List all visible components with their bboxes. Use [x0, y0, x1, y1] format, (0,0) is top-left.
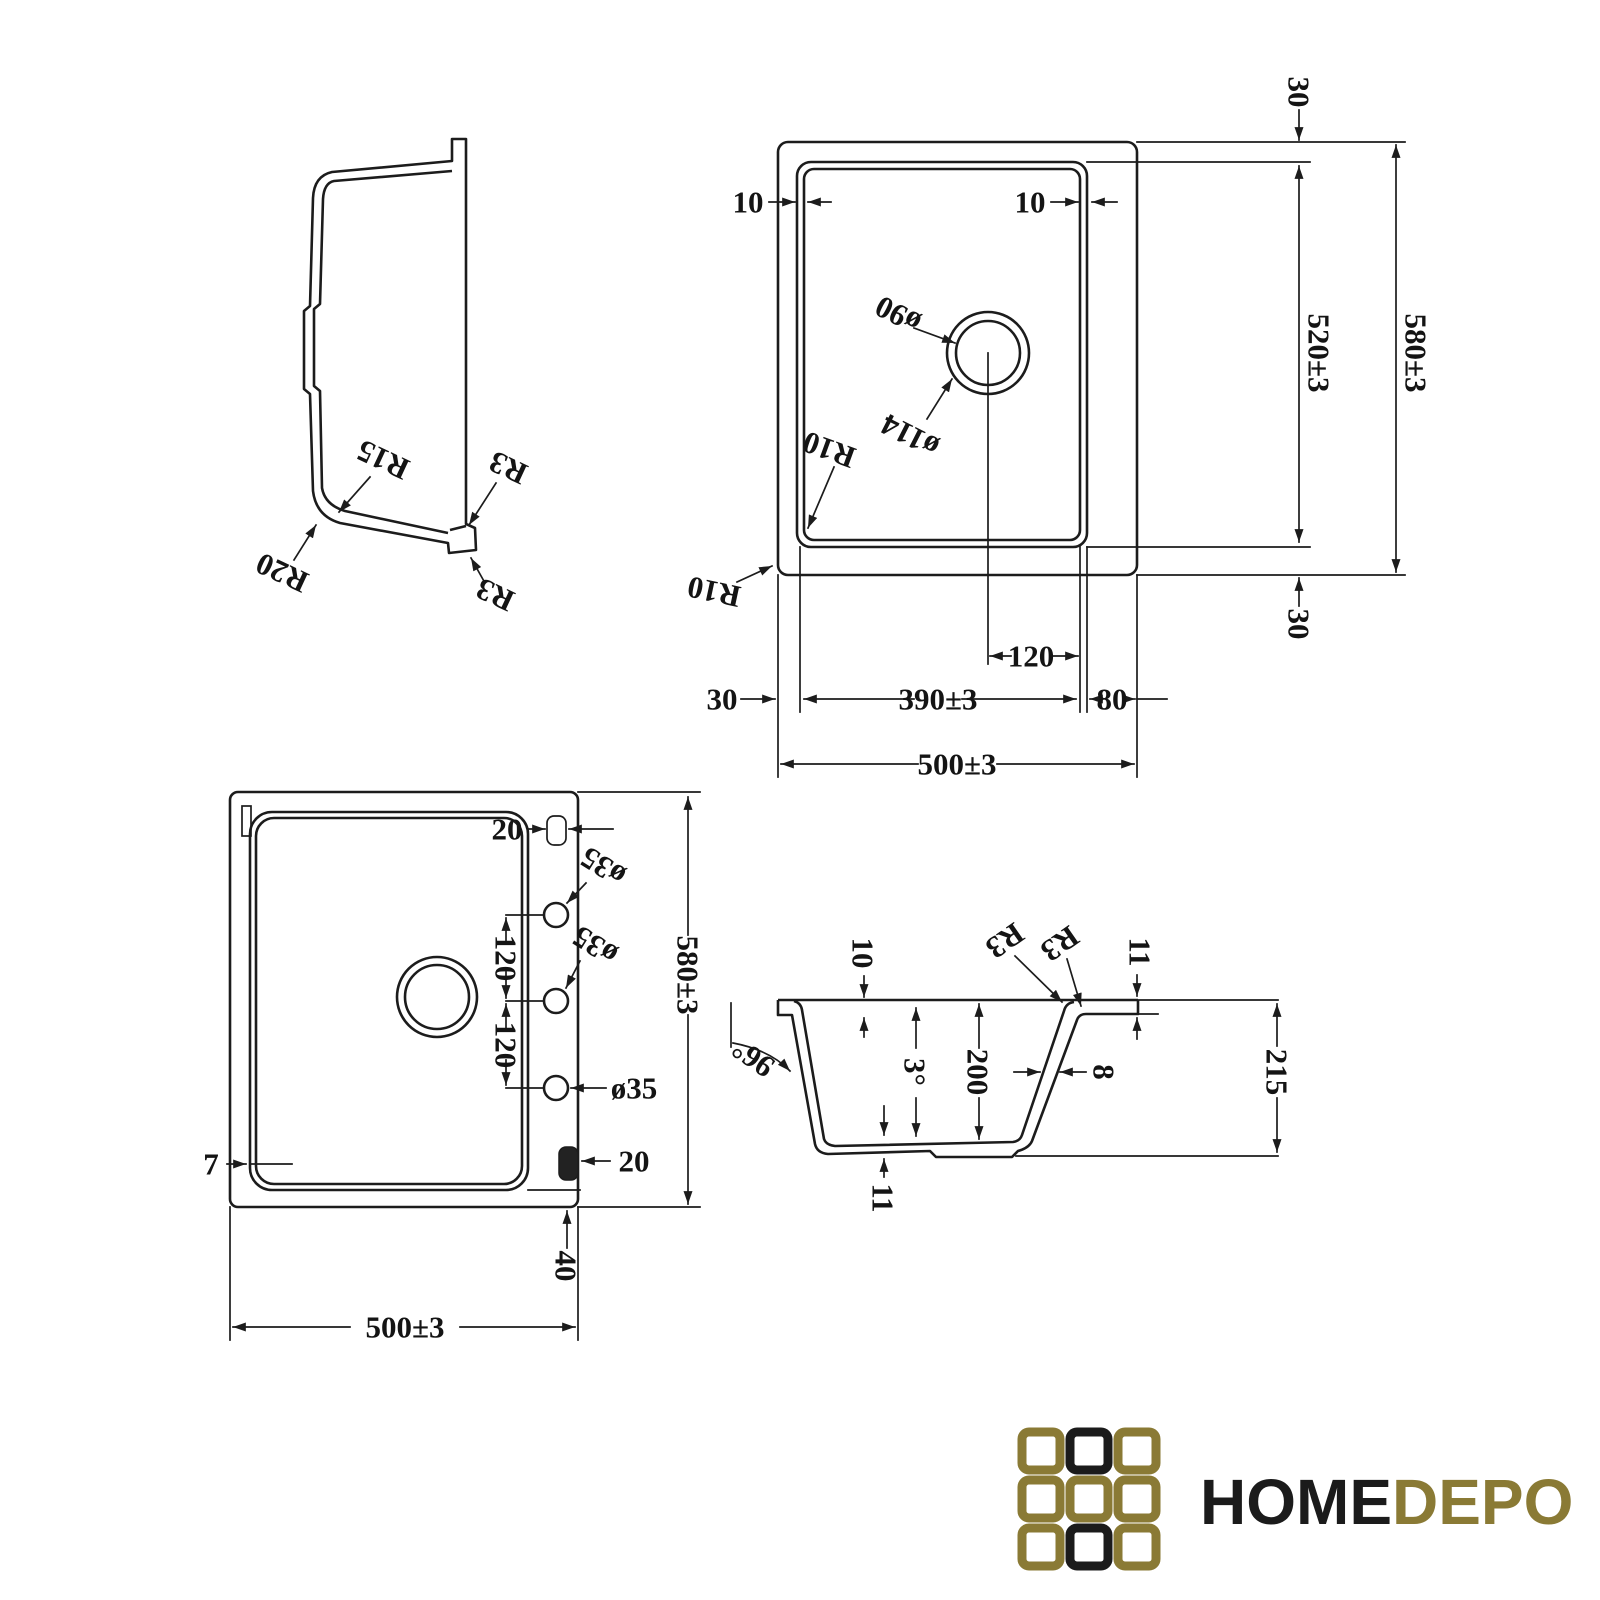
r3-inner-label: R3	[483, 444, 532, 492]
logo-square	[1070, 1480, 1108, 1518]
mounting-clip-bottom	[559, 1147, 578, 1180]
bottom-view: 20 20 7 120 120 ø35 ø35 ø35 580±3 40 500…	[203, 792, 705, 1345]
logo-square	[1118, 1432, 1156, 1470]
bowl-corner-radius-label: R10	[798, 424, 860, 475]
right-offset-dim: 80	[1097, 682, 1128, 717]
underside-offset-dim: 40	[549, 1251, 584, 1282]
logo-word-depo: DEPO	[1392, 1466, 1573, 1538]
clip-bottom-dim: 20	[619, 1144, 650, 1179]
tap-hole-2	[544, 989, 568, 1013]
hole-spacing-2-dim: 120	[489, 1022, 524, 1069]
overall-depth-dim: 215	[1260, 1049, 1295, 1096]
bottom-overall-length-dim: 580±3	[671, 935, 706, 1014]
bowl-depth-dim: 200	[961, 1049, 996, 1096]
sink-technical-drawing: R15 R20 R3 R3 30 520±3 30 580±3 10	[0, 0, 1600, 1600]
drain-recess-dim: ø114	[875, 407, 945, 466]
tap-hole-1	[544, 903, 568, 927]
logo-square	[1118, 1480, 1156, 1518]
tap-hole-3-dim: ø35	[611, 1071, 658, 1106]
bottom-view-body-inner	[256, 818, 522, 1184]
tap-hole-2-dim: ø35	[566, 919, 624, 973]
bottom-view-body	[250, 812, 528, 1190]
wall-angle-dim: 96°	[725, 1031, 781, 1085]
rim-depth-dim: 10	[846, 938, 881, 969]
logo-wordmark: HOMEDEPO	[1200, 1466, 1573, 1538]
bottom-overall-width-dim: 500±3	[365, 1310, 444, 1345]
flange-thickness-dim: 11	[1123, 937, 1158, 966]
logo-square	[1118, 1528, 1156, 1566]
bowl-width-dim: 390±3	[898, 682, 977, 717]
drain-outline-inner	[405, 965, 469, 1029]
wall-thickness-dim: 8	[1087, 1064, 1122, 1080]
hole-spacing-1-dim: 120	[489, 935, 524, 982]
logo-square	[1070, 1528, 1108, 1566]
homedepo-logo: HOMEDEPO	[1022, 1432, 1573, 1566]
bowl-length-dim: 520±3	[1302, 313, 1337, 392]
top-view-bowl-opening	[804, 169, 1080, 540]
top-offset-dim: 30	[1282, 77, 1317, 108]
outer-corner-radius-label: R10	[684, 569, 744, 614]
drain-hole-dim: ø90	[869, 289, 926, 341]
technical-drawing-page: { "drawing": { "background": "#ffffff", …	[0, 0, 1600, 1600]
section-r3-outer-label: R3	[1034, 919, 1085, 969]
rim-left-dim: 10	[733, 185, 764, 220]
top-view-bowl-rim	[797, 162, 1087, 547]
side-profile-view: R15 R20 R3 R3	[250, 139, 532, 619]
r15-label: R15	[351, 433, 414, 487]
drain-offset-dim: 120	[1008, 639, 1055, 674]
section-view: 96° 10 3° 200 8 R3 R3 11 215 11	[725, 916, 1294, 1213]
lip-dim: 7	[203, 1147, 219, 1182]
base-slope-dim: 3°	[898, 1058, 933, 1086]
drain-outline	[397, 957, 477, 1037]
overall-length-dim: 580±3	[1399, 313, 1434, 392]
logo-square	[1070, 1432, 1108, 1470]
rim-right-dim: 10	[1015, 185, 1046, 220]
mounting-clip-top	[547, 816, 566, 845]
left-offset-dim: 30	[707, 682, 738, 717]
logo-square	[1022, 1432, 1060, 1470]
clip-top-dim: 20	[492, 812, 523, 847]
logo-square	[1022, 1480, 1060, 1518]
drawing-svg: R15 R20 R3 R3 30 520±3 30 580±3 10	[0, 0, 1600, 1600]
top-view: 30 520±3 30 580±3 10 10 ø90 ø114 R10 R10…	[684, 77, 1433, 782]
tap-hole-3	[544, 1076, 568, 1100]
logo-square	[1022, 1528, 1060, 1566]
r20-label: R20	[250, 546, 313, 600]
logo-grid-icon	[1022, 1432, 1156, 1566]
logo-word-home: HOME	[1200, 1466, 1392, 1538]
bottom-offset-dim: 30	[1282, 609, 1317, 640]
section-r3-inner-label: R3	[979, 916, 1030, 966]
overall-width-dim: 500±3	[917, 747, 996, 782]
base-thickness-dim: 11	[866, 1183, 901, 1212]
r3-outer-label: R3	[470, 571, 519, 619]
